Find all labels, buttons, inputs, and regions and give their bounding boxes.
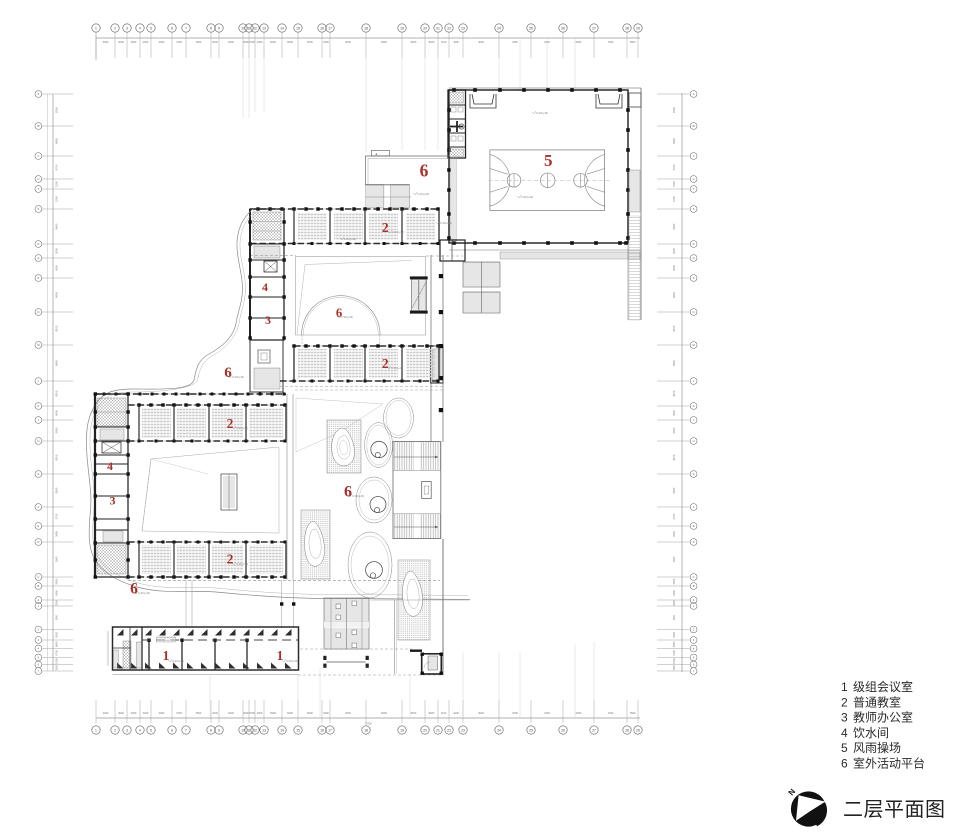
svg-text:21: 21: [436, 27, 440, 31]
svg-text:2700: 2700: [672, 513, 676, 519]
svg-text:17500: 17500: [364, 722, 372, 726]
svg-text:2000: 2000: [212, 711, 218, 715]
svg-text:8400: 8400: [672, 360, 676, 366]
svg-text:2400: 2400: [143, 711, 149, 715]
svg-text:1500: 1500: [55, 196, 59, 202]
svg-text:A: A: [693, 598, 695, 602]
svg-text:5400: 5400: [228, 40, 234, 44]
svg-text:7100: 7100: [441, 40, 447, 44]
svg-text:7: 7: [185, 729, 187, 733]
svg-text:1: 1: [277, 648, 284, 663]
svg-text:7800: 7800: [196, 711, 202, 715]
svg-text:13: 13: [262, 27, 266, 31]
svg-text:7800: 7800: [630, 711, 636, 715]
svg-text:8400: 8400: [672, 138, 676, 144]
svg-text:7200: 7200: [176, 711, 182, 715]
svg-text:3300: 3300: [323, 40, 329, 44]
svg-text:6: 6: [420, 161, 429, 181]
svg-text:2: 2: [382, 356, 389, 371]
svg-text:28: 28: [625, 729, 629, 733]
svg-text:8100: 8100: [55, 325, 59, 331]
svg-text:10: 10: [241, 729, 245, 733]
svg-text:3: 3: [265, 313, 271, 327]
svg-text:6: 6: [344, 484, 352, 501]
svg-text:4700: 4700: [55, 164, 59, 170]
svg-text:8100: 8100: [55, 390, 59, 396]
svg-text:M: M: [693, 343, 695, 347]
svg-text:8400: 8400: [55, 360, 59, 366]
svg-text:4700: 4700: [672, 164, 676, 170]
svg-text:2: 2: [382, 220, 389, 235]
svg-text:5000: 5000: [55, 427, 59, 433]
svg-text:6: 6: [841, 757, 848, 771]
svg-text:3400: 3400: [55, 531, 59, 537]
svg-text:E: E: [693, 524, 695, 528]
svg-text:7600: 7600: [249, 40, 255, 44]
svg-text:3.30(+M): 3.30(+M): [341, 315, 353, 319]
svg-text:3.30(+M): 3.30(+M): [236, 562, 248, 566]
svg-text:11: 11: [247, 27, 251, 31]
svg-text:15: 15: [296, 729, 300, 733]
svg-text:3.30(+M): 3.30(+M): [352, 494, 364, 498]
svg-text:4400: 4400: [103, 711, 109, 715]
svg-text:3300: 3300: [323, 711, 329, 715]
svg-text:4: 4: [262, 280, 268, 294]
svg-text:S: S: [38, 207, 40, 211]
svg-text:6: 6: [130, 581, 138, 598]
svg-text:5400: 5400: [228, 711, 234, 715]
svg-text:3000: 3000: [118, 711, 124, 715]
svg-text:6: 6: [224, 365, 232, 381]
svg-text:8400: 8400: [55, 138, 59, 144]
svg-text:3300: 3300: [512, 711, 518, 715]
svg-text:3.30(+M): 3.30(+M): [172, 659, 184, 663]
svg-text:8400: 8400: [672, 223, 676, 229]
svg-text:4: 4: [107, 459, 113, 473]
svg-text:6000: 6000: [576, 40, 582, 44]
svg-text:6000: 6000: [287, 40, 293, 44]
svg-text:7200: 7200: [608, 711, 614, 715]
svg-text:X: X: [38, 92, 40, 96]
svg-text:8400: 8400: [429, 40, 435, 44]
svg-text:8400: 8400: [270, 40, 276, 44]
svg-text:5: 5: [150, 27, 152, 31]
svg-text:8100: 8100: [55, 454, 59, 460]
svg-text:4700: 4700: [55, 650, 59, 656]
svg-text:级组会议室: 级组会议室: [853, 679, 913, 694]
svg-text:4: 4: [139, 27, 141, 31]
svg-text:U: U: [37, 177, 39, 181]
svg-text:室外活动平台: 室外活动平台: [853, 756, 925, 771]
svg-text:7200: 7200: [176, 40, 182, 44]
svg-text:4700: 4700: [672, 650, 676, 656]
svg-text:22: 22: [447, 27, 451, 31]
svg-text:2400: 2400: [55, 590, 59, 596]
svg-text:2400: 2400: [672, 590, 676, 596]
svg-text:2: 2: [227, 552, 234, 567]
svg-text:2400: 2400: [544, 711, 550, 715]
svg-text:3.30(+M): 3.30(+M): [417, 192, 429, 196]
svg-text:4400: 4400: [453, 40, 459, 44]
svg-text:3.30(+M): 3.30(+M): [392, 230, 404, 234]
svg-text:D: D: [37, 540, 39, 544]
svg-text:H: H: [693, 439, 695, 443]
svg-text:1500: 1500: [672, 196, 676, 202]
svg-text:6: 6: [171, 729, 173, 733]
svg-text:3: 3: [126, 27, 128, 31]
svg-text:3400: 3400: [672, 531, 676, 537]
svg-text:7600: 7600: [249, 711, 255, 715]
svg-text:6000: 6000: [159, 40, 165, 44]
svg-text:26: 26: [561, 729, 565, 733]
svg-text:19: 19: [400, 27, 404, 31]
svg-text:14: 14: [280, 27, 284, 31]
svg-text:4: 4: [841, 726, 848, 740]
svg-text:15: 15: [296, 27, 300, 31]
svg-text:风雨操场: 风雨操场: [853, 740, 901, 755]
svg-text:8100: 8100: [672, 325, 676, 331]
svg-text:3.30(+M): 3.30(+M): [344, 237, 356, 241]
svg-text:3: 3: [841, 711, 848, 725]
svg-text:18: 18: [364, 27, 368, 31]
svg-text:8100: 8100: [672, 390, 676, 396]
svg-text:5: 5: [841, 741, 848, 755]
svg-text:普通教室: 普通教室: [853, 694, 901, 709]
svg-text:◂: ◂: [375, 152, 377, 156]
svg-text:29: 29: [636, 27, 640, 31]
svg-text:D: D: [693, 540, 695, 544]
svg-text:3300: 3300: [512, 40, 518, 44]
svg-text:8400: 8400: [55, 223, 59, 229]
svg-text:1500: 1500: [672, 658, 676, 664]
svg-text:17: 17: [328, 729, 332, 733]
svg-text:10: 10: [241, 27, 245, 31]
svg-text:16: 16: [320, 729, 324, 733]
svg-text:3.30(+M): 3.30(+M): [440, 221, 452, 225]
svg-text:4400: 4400: [453, 711, 459, 715]
svg-text:3000: 3000: [55, 248, 59, 254]
svg-text:8400: 8400: [411, 711, 417, 715]
svg-text:1500: 1500: [55, 658, 59, 664]
svg-text:8400: 8400: [381, 711, 387, 715]
svg-text:3000: 3000: [478, 711, 484, 715]
svg-text:8400: 8400: [55, 641, 59, 647]
svg-text:1500: 1500: [672, 181, 676, 187]
svg-text:4400: 4400: [103, 40, 109, 44]
svg-text:教师办公室: 教师办公室: [853, 710, 913, 725]
svg-text:5900: 5900: [672, 578, 676, 584]
svg-text:17: 17: [328, 27, 332, 31]
svg-text:27: 27: [592, 729, 596, 733]
svg-text:3.30(+M): 3.30(+M): [286, 659, 298, 663]
svg-text:6000: 6000: [287, 711, 293, 715]
svg-text:2: 2: [114, 729, 116, 733]
svg-text:P: P: [38, 276, 40, 280]
svg-text:2000: 2000: [257, 40, 263, 44]
svg-text:20: 20: [423, 27, 427, 31]
svg-text:1200: 1200: [55, 614, 59, 620]
svg-text:K: K: [38, 404, 40, 408]
svg-text:29: 29: [636, 729, 640, 733]
svg-text:4500: 4500: [55, 265, 59, 271]
svg-text:N: N: [693, 310, 695, 314]
svg-text:23: 23: [461, 27, 465, 31]
svg-text:3.30(+M): 3.30(+M): [232, 375, 244, 379]
svg-text:2: 2: [841, 695, 848, 709]
svg-text:1500: 1500: [672, 664, 676, 670]
svg-text:1: 1: [841, 680, 848, 694]
svg-text:3.30(+M): 3.30(+M): [521, 195, 533, 199]
svg-text:12: 12: [253, 27, 257, 31]
svg-text:9: 9: [218, 27, 220, 31]
svg-text:4: 4: [139, 729, 141, 733]
svg-text:3000: 3000: [672, 248, 676, 254]
svg-text:P: P: [693, 276, 695, 280]
svg-text:2000: 2000: [212, 40, 218, 44]
svg-text:8400: 8400: [270, 711, 276, 715]
svg-text:M: M: [37, 343, 39, 347]
svg-text:5900: 5900: [55, 578, 59, 584]
svg-text:22: 22: [447, 729, 451, 733]
svg-text:8100: 8100: [672, 107, 676, 113]
svg-text:1: 1: [95, 27, 97, 31]
svg-text:8400: 8400: [381, 40, 387, 44]
svg-text:Q: Q: [693, 256, 695, 260]
svg-text:3300: 3300: [672, 600, 676, 606]
svg-text:S: S: [693, 207, 695, 211]
svg-text:3000: 3000: [478, 40, 484, 44]
svg-text:G: G: [37, 472, 39, 476]
svg-text:23: 23: [461, 729, 465, 733]
svg-text:25: 25: [529, 27, 533, 31]
svg-text:8400: 8400: [672, 641, 676, 647]
svg-text:7: 7: [185, 27, 187, 31]
svg-text:6000: 6000: [307, 711, 313, 715]
svg-text:6000: 6000: [307, 40, 313, 44]
svg-text:R: R: [693, 242, 695, 246]
svg-text:6: 6: [171, 27, 173, 31]
svg-text:H: H: [37, 439, 39, 443]
svg-text:8400: 8400: [411, 40, 417, 44]
svg-text:A: A: [38, 598, 40, 602]
svg-text:1000: 1000: [672, 556, 676, 562]
svg-text:2600: 2600: [345, 40, 351, 44]
svg-text:8000: 8000: [672, 487, 676, 493]
svg-text:3: 3: [126, 729, 128, 733]
svg-text:1: 1: [163, 648, 170, 663]
svg-text:5000: 5000: [672, 427, 676, 433]
svg-text:13: 13: [262, 729, 266, 733]
svg-text:12: 12: [253, 729, 257, 733]
svg-text:1: 1: [95, 729, 97, 733]
svg-text:8400: 8400: [672, 292, 676, 298]
svg-text:6000: 6000: [576, 711, 582, 715]
svg-text:24: 24: [497, 729, 501, 733]
svg-text:3300: 3300: [55, 600, 59, 606]
svg-text:6: 6: [336, 306, 342, 320]
svg-text:4500: 4500: [55, 410, 59, 416]
svg-text:8400: 8400: [55, 292, 59, 298]
svg-text:21: 21: [436, 729, 440, 733]
svg-text:8: 8: [210, 27, 212, 31]
svg-text:2600: 2600: [345, 711, 351, 715]
svg-text:3: 3: [110, 494, 116, 508]
svg-text:7800: 7800: [196, 40, 202, 44]
svg-text:3.30(+M): 3.30(+M): [536, 111, 548, 115]
svg-text:R: R: [37, 242, 39, 246]
svg-text:X: X: [693, 92, 695, 96]
svg-text:4500: 4500: [672, 410, 676, 416]
svg-text:20: 20: [423, 729, 427, 733]
svg-text:7200: 7200: [608, 40, 614, 44]
svg-text:3.30(+M): 3.30(+M): [391, 366, 403, 370]
svg-text:B: B: [693, 584, 695, 588]
svg-text:V: V: [693, 154, 695, 158]
svg-text:C: C: [693, 575, 695, 579]
svg-text:2: 2: [227, 416, 234, 431]
svg-text:3300: 3300: [131, 711, 137, 715]
svg-text:8100: 8100: [672, 454, 676, 460]
svg-text:4500: 4500: [672, 265, 676, 271]
svg-text:7100: 7100: [441, 711, 447, 715]
svg-text:V: V: [38, 154, 40, 158]
svg-text:Q: Q: [37, 256, 39, 260]
svg-text:3.30(+M): 3.30(+M): [236, 426, 248, 430]
svg-text:5: 5: [150, 729, 152, 733]
svg-text:U: U: [693, 177, 695, 181]
svg-text:1000: 1000: [55, 556, 59, 562]
svg-text:8100: 8100: [672, 631, 676, 637]
svg-text:8100: 8100: [55, 107, 59, 113]
svg-text:2: 2: [114, 27, 116, 31]
svg-text:14: 14: [280, 729, 284, 733]
svg-text:28: 28: [625, 27, 629, 31]
svg-text:二层平面图: 二层平面图: [843, 799, 946, 821]
svg-text:18: 18: [364, 729, 368, 733]
svg-text:3000: 3000: [118, 40, 124, 44]
svg-text:2000: 2000: [257, 711, 263, 715]
svg-text:7800: 7800: [630, 40, 636, 44]
svg-text:1500: 1500: [55, 181, 59, 187]
svg-text:16: 16: [320, 27, 324, 31]
svg-text:11: 11: [247, 729, 251, 733]
svg-text:26: 26: [561, 27, 565, 31]
svg-text:3.30(+M): 3.30(+M): [138, 591, 150, 595]
svg-text:6000: 6000: [159, 711, 165, 715]
svg-text:8000: 8000: [55, 487, 59, 493]
svg-text:27: 27: [592, 27, 596, 31]
svg-text:1200: 1200: [672, 614, 676, 620]
svg-text:2400: 2400: [544, 40, 550, 44]
svg-text:E: E: [38, 524, 40, 528]
svg-text:B: B: [38, 584, 40, 588]
svg-text:G: G: [693, 472, 695, 476]
svg-text:8100: 8100: [55, 631, 59, 637]
svg-text:1500: 1500: [55, 664, 59, 670]
svg-text:19: 19: [400, 729, 404, 733]
svg-text:2400: 2400: [143, 40, 149, 44]
svg-text:25: 25: [529, 729, 533, 733]
svg-text:5: 5: [544, 151, 553, 170]
svg-text:24: 24: [497, 27, 501, 31]
svg-text:8400: 8400: [429, 711, 435, 715]
svg-text:K: K: [693, 404, 695, 408]
svg-text:C: C: [37, 575, 39, 579]
svg-text:N: N: [37, 310, 39, 314]
svg-text:8: 8: [210, 729, 212, 733]
svg-text:9: 9: [218, 729, 220, 733]
svg-text:2700: 2700: [55, 513, 59, 519]
svg-text:3300: 3300: [131, 40, 137, 44]
svg-text:饮水间: 饮水间: [853, 726, 889, 740]
